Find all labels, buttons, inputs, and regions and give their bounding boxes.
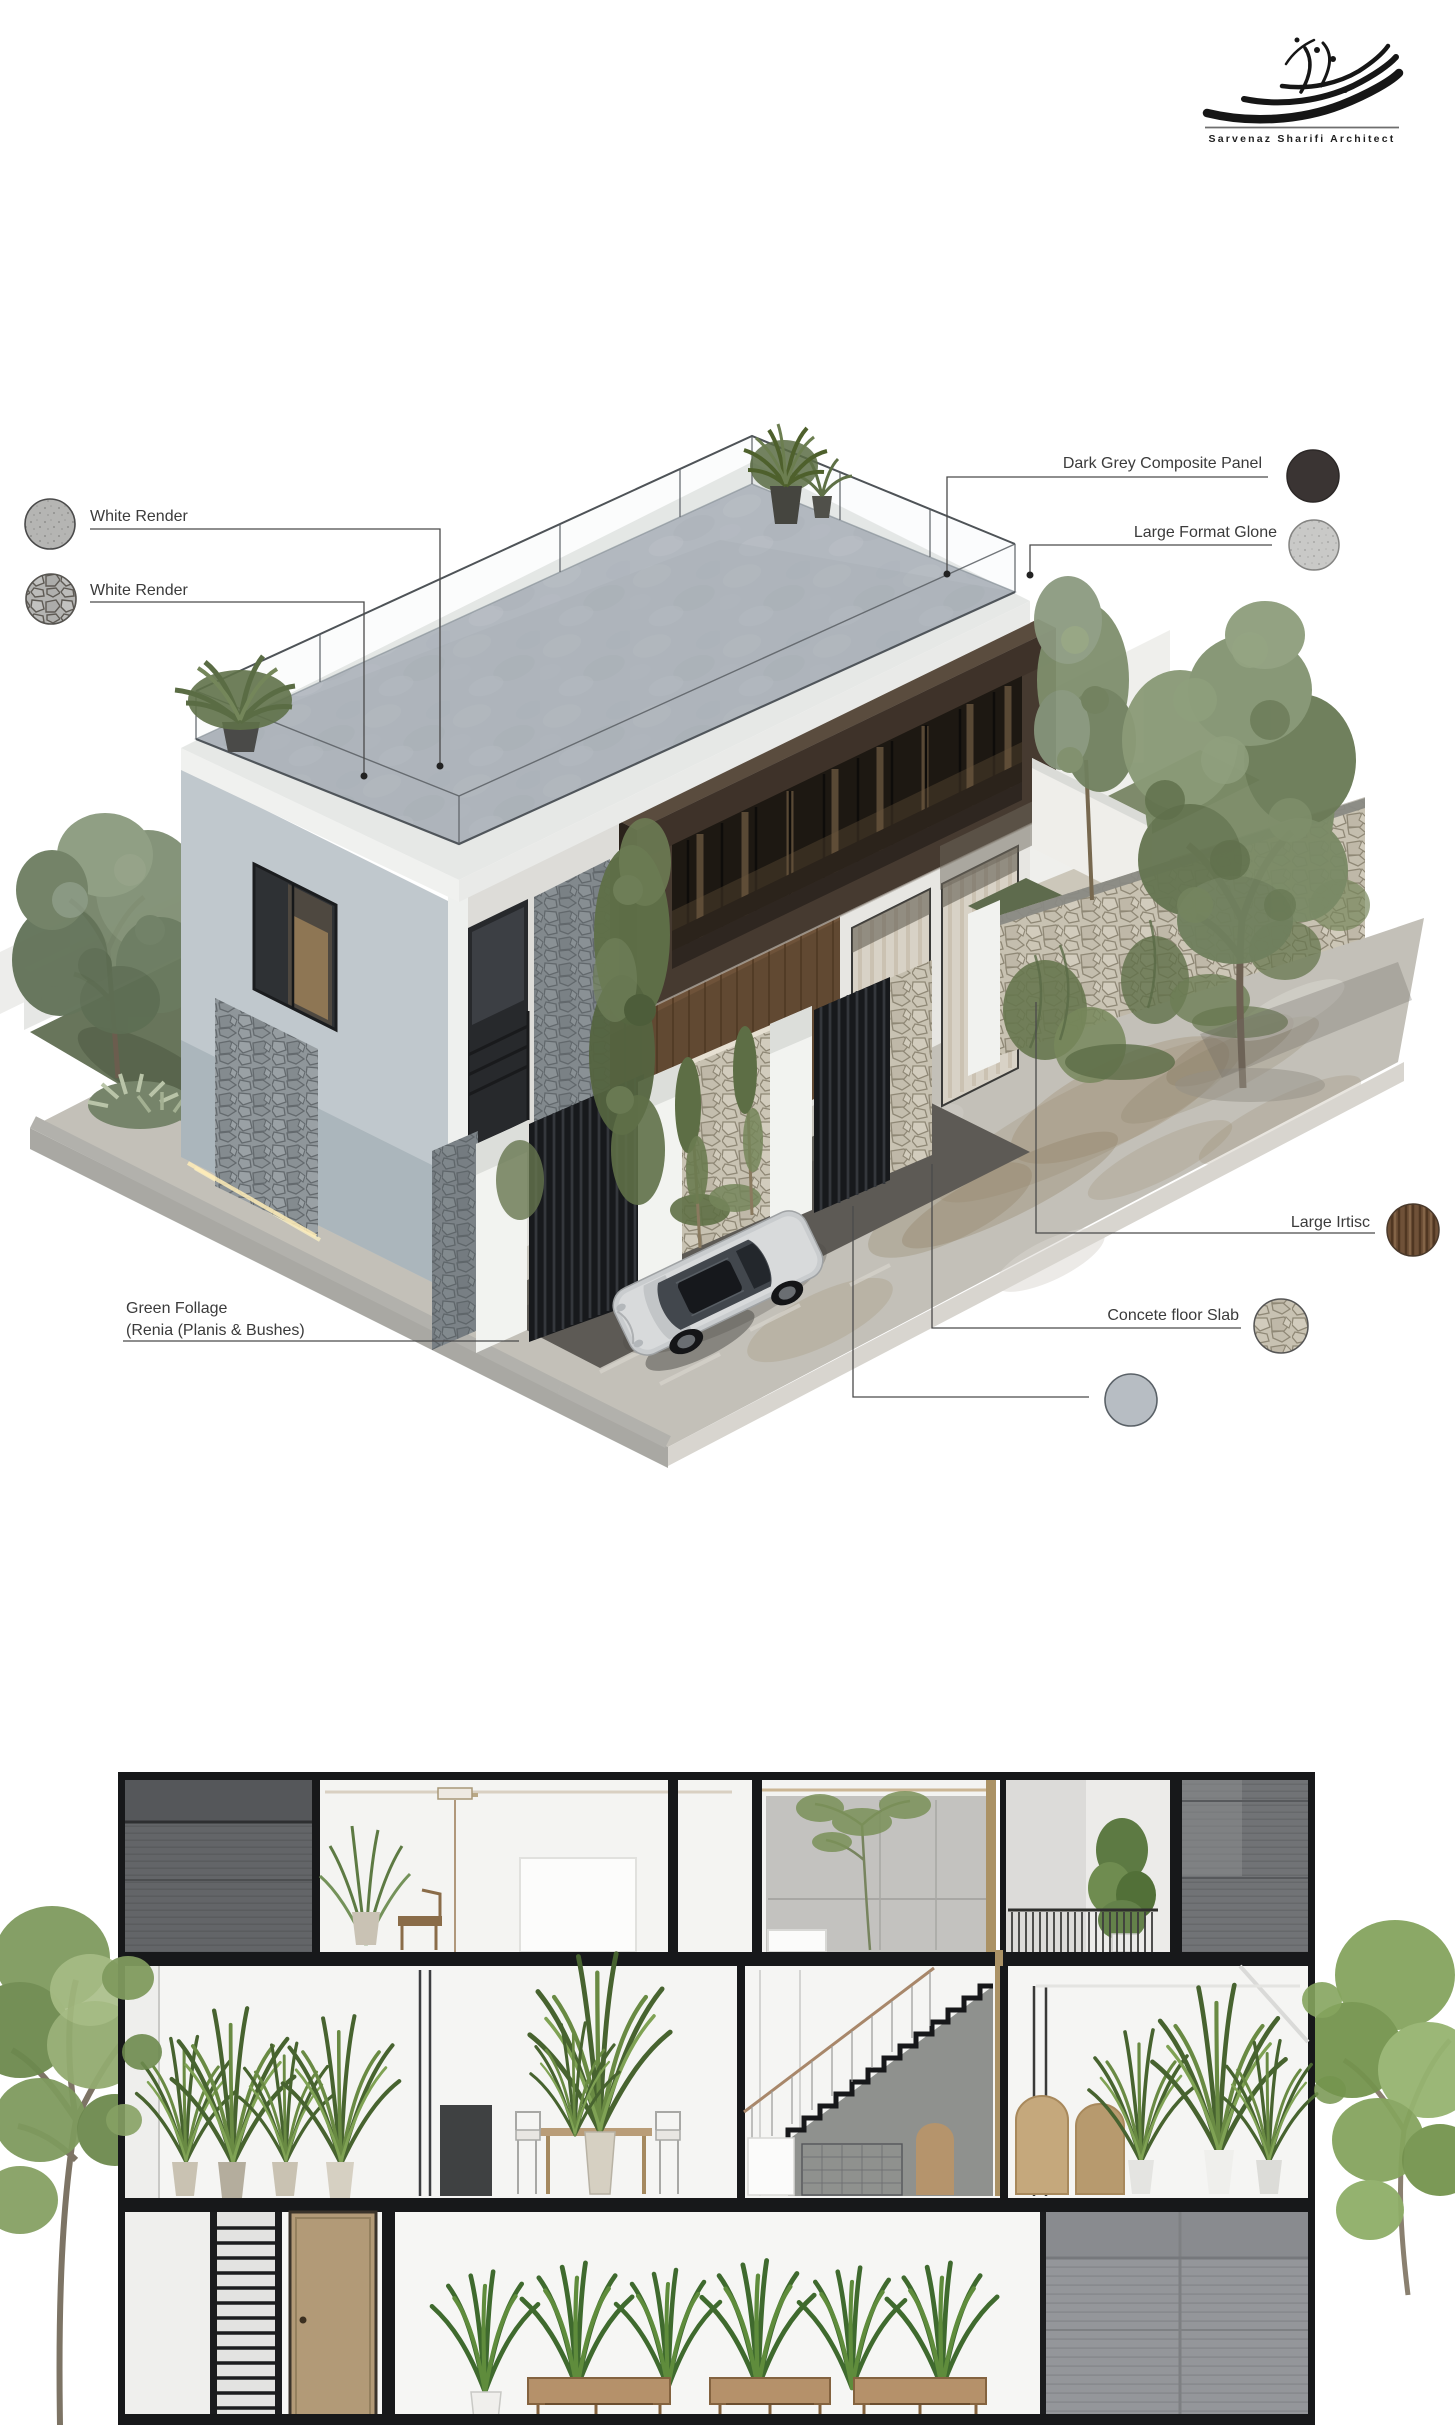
svg-text:Sarvenaz Sharifi Architect: Sarvenaz Sharifi Architect [1209, 133, 1396, 145]
svg-text:Concete floor Slab: Concete floor Slab [1107, 1307, 1239, 1324]
svg-text:Large Format Glone: Large Format Glone [1134, 524, 1277, 541]
svg-text:White Render: White Render [90, 508, 188, 525]
svg-text:(Renia (Planis & Bushes): (Renia (Planis & Bushes) [126, 1322, 305, 1339]
svg-text:White Render: White Render [90, 582, 188, 599]
svg-text:Large Irtisc: Large Irtisc [1291, 1214, 1370, 1231]
svg-text:Green Follage: Green Follage [126, 1300, 227, 1317]
svg-text:Dark Grey Composite Panel: Dark Grey Composite Panel [1063, 455, 1262, 472]
